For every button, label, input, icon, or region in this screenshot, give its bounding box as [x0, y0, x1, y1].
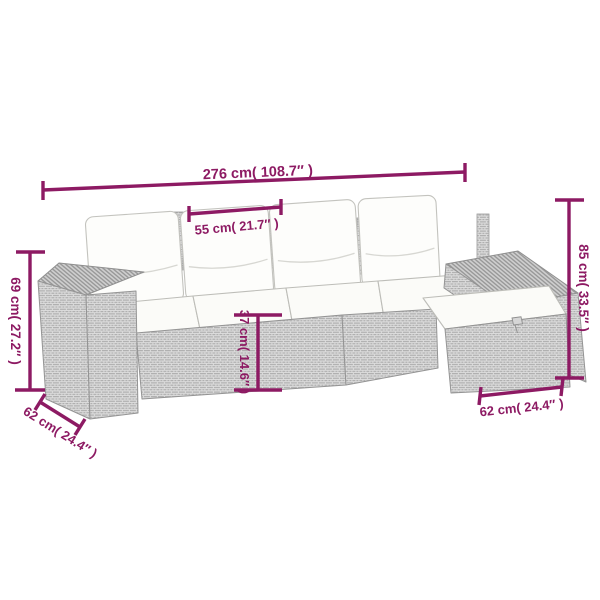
dimension-label-total-height: 85 cm( 33.5″ ): [576, 244, 591, 332]
sofa-illustration: [38, 195, 586, 419]
dimension-label-seat-height: 37 cm( 14.6″ ): [237, 310, 252, 394]
back-cushion: [358, 195, 440, 287]
product-dimension-diagram: 276 cm( 108.7″ ) 55 cm( 21.7″ ) 85 cm( 3…: [0, 0, 600, 600]
dim-total-width: 276 cm( 108.7″ ): [43, 163, 465, 200]
dimension-label-armrest-height: 69 cm( 27.2″ ): [8, 277, 23, 365]
back-cushion-4: [358, 195, 440, 287]
left-armrest-side: [86, 291, 138, 419]
back-cushion: [269, 199, 361, 295]
sofa-base-right: [342, 309, 438, 385]
sofa-diagram-svg: 276 cm( 108.7″ ) 55 cm( 21.7″ ) 85 cm( 3…: [0, 0, 600, 600]
left-armrest-front: [38, 281, 90, 419]
dimension-tick-start: [479, 387, 481, 405]
dimension-tick-end: [561, 378, 563, 396]
back-cushion-3: [269, 199, 361, 295]
dim-armrest-height: 69 cm( 27.2″ ): [8, 252, 45, 390]
dimension-label-depth-right: 62 cm( 24.4″ ): [479, 396, 564, 420]
